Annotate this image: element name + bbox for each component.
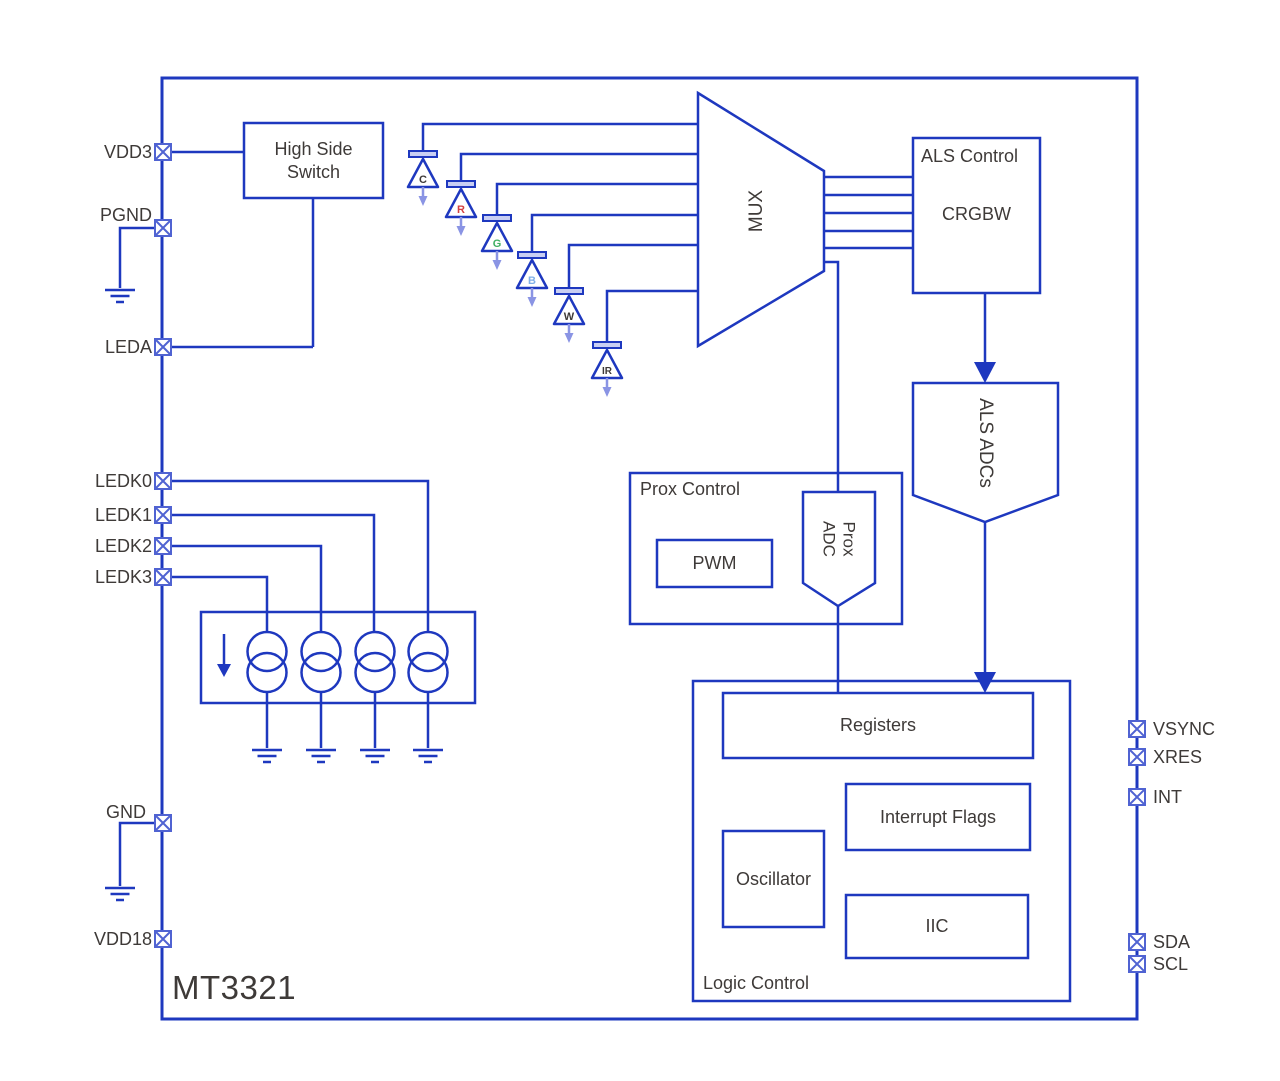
pin-ledk1-icon bbox=[155, 507, 171, 523]
wire-photodiode-ir-to-mux bbox=[607, 291, 698, 342]
photodiode-w: W bbox=[554, 288, 584, 343]
ground-icon bbox=[252, 750, 282, 762]
pin-scl-icon bbox=[1129, 956, 1145, 972]
photodiode-g: G bbox=[482, 215, 512, 270]
pin-vdd3-icon bbox=[155, 144, 171, 160]
pin-ledk3-icon bbox=[155, 569, 171, 585]
pin-vsync-icon bbox=[1129, 721, 1145, 737]
diagram-artwork: C R G B W IR bbox=[0, 0, 1280, 1081]
oscillator-label: Oscillator bbox=[723, 831, 824, 927]
interrupt-flags-label: Interrupt Flags bbox=[846, 784, 1030, 850]
photodiode-icon bbox=[447, 181, 475, 187]
wire-photodiode-w-to-mux bbox=[569, 245, 698, 288]
pin-label-ledk3: LEDK3 bbox=[40, 566, 152, 588]
pin-label-leda: LEDA bbox=[40, 336, 152, 358]
photodiode-label: W bbox=[564, 311, 575, 323]
high-side-switch-label: High Side Switch bbox=[244, 123, 383, 198]
photodiode-icon bbox=[483, 215, 511, 221]
pin-pgnd-icon bbox=[155, 220, 171, 236]
pin-int-icon bbox=[1129, 789, 1145, 805]
prox-control-title: Prox Control bbox=[640, 478, 740, 500]
led-current-source-bank bbox=[201, 612, 475, 703]
wires bbox=[120, 124, 996, 886]
photodiode-icon bbox=[593, 342, 621, 348]
wire-ledk2 bbox=[171, 546, 321, 633]
wire-hss-to-leda bbox=[171, 198, 313, 347]
photodiode-icon bbox=[409, 151, 437, 157]
pin-label-gnd: GND bbox=[34, 801, 146, 823]
pin-label-scl: SCL bbox=[1153, 953, 1188, 975]
arrow-down-icon bbox=[565, 324, 574, 343]
wire-photodiode-g-to-mux bbox=[497, 184, 698, 215]
pin-label-ledk2: LEDK2 bbox=[40, 535, 152, 557]
photodiode-label: B bbox=[528, 275, 536, 287]
current-source-icon bbox=[356, 632, 395, 692]
wires-current-sources-to-ground bbox=[267, 691, 428, 748]
pin-label-vdd18: VDD18 bbox=[40, 928, 152, 950]
photodiode-label: G bbox=[493, 238, 502, 250]
current-source-icon bbox=[409, 632, 448, 692]
arrow-down-icon bbox=[217, 664, 231, 677]
pin-label-ledk1: LEDK1 bbox=[40, 504, 152, 526]
pin-label-ledk0: LEDK0 bbox=[40, 470, 152, 492]
arrow-down-icon bbox=[419, 187, 428, 206]
ground-icon bbox=[413, 750, 443, 762]
pwm-label: PWM bbox=[657, 540, 772, 587]
prox-adc-label: Prox ADC bbox=[814, 519, 862, 560]
als-adcs-label: ALS ADCs bbox=[940, 432, 1030, 454]
wire-ledk0 bbox=[171, 481, 428, 633]
block-diagram: C R G B W IR bbox=[0, 0, 1280, 1081]
pin-leda-icon bbox=[155, 339, 171, 355]
current-source-box bbox=[201, 612, 475, 703]
arrow-down-icon bbox=[974, 362, 996, 383]
pin-gnd-icon bbox=[155, 815, 171, 831]
als-control-sub-label: CRGBW bbox=[913, 203, 1040, 225]
current-source-icon bbox=[302, 632, 341, 692]
ground-icon bbox=[306, 750, 336, 762]
logic-control-title: Logic Control bbox=[703, 972, 809, 994]
pin-label-vdd3: VDD3 bbox=[40, 141, 152, 163]
pin-label-xres: XRES bbox=[1153, 746, 1202, 768]
ground-icon bbox=[360, 750, 390, 762]
arrow-down-icon bbox=[974, 672, 996, 693]
pin-label-sda: SDA bbox=[1153, 931, 1190, 953]
wire-gnd-to-ground bbox=[120, 823, 163, 886]
registers-label: Registers bbox=[723, 693, 1033, 758]
photodiode-label: C bbox=[419, 174, 427, 186]
photodiode-label: IR bbox=[602, 366, 613, 377]
als-control-title: ALS Control bbox=[921, 145, 1018, 167]
pin-label-int: INT bbox=[1153, 786, 1182, 808]
arrow-down-icon bbox=[603, 378, 612, 397]
wire-photodiode-c-to-mux bbox=[423, 124, 698, 151]
wires-mux-to-als-control bbox=[824, 177, 913, 248]
photodiode-ir: IR bbox=[592, 342, 622, 397]
photodiode-icon bbox=[518, 252, 546, 258]
ground-icon bbox=[105, 888, 135, 900]
wire-photodiode-r-to-mux bbox=[461, 154, 698, 181]
ground-icon bbox=[105, 290, 135, 302]
photodiode-label: R bbox=[457, 204, 465, 216]
pin-xres-icon bbox=[1129, 749, 1145, 765]
pin-vdd18-icon bbox=[155, 931, 171, 947]
pin-ledk2-icon bbox=[155, 538, 171, 554]
pin-sda-icon bbox=[1129, 934, 1145, 950]
arrow-down-icon bbox=[493, 251, 502, 270]
mux-label: MUX bbox=[736, 200, 778, 222]
photodiode-c: C bbox=[408, 151, 438, 206]
wire-photodiode-b-to-mux bbox=[532, 215, 698, 252]
photodiode-icon bbox=[555, 288, 583, 294]
arrow-down-icon bbox=[457, 217, 466, 236]
wire-mux-to-prox-adc bbox=[824, 262, 838, 492]
arrow-down-icon bbox=[528, 288, 537, 307]
photodiode-r: R bbox=[446, 181, 476, 236]
chip-name: MT3321 bbox=[172, 969, 296, 1007]
iic-label: IIC bbox=[846, 895, 1028, 958]
pin-ledk0-icon bbox=[155, 473, 171, 489]
pin-label-pgnd: PGND bbox=[40, 204, 152, 226]
wire-ledk3 bbox=[171, 577, 267, 633]
photodiode-b: B bbox=[517, 252, 547, 307]
pin-label-vsync: VSYNC bbox=[1153, 718, 1215, 740]
current-source-icon bbox=[248, 632, 287, 692]
